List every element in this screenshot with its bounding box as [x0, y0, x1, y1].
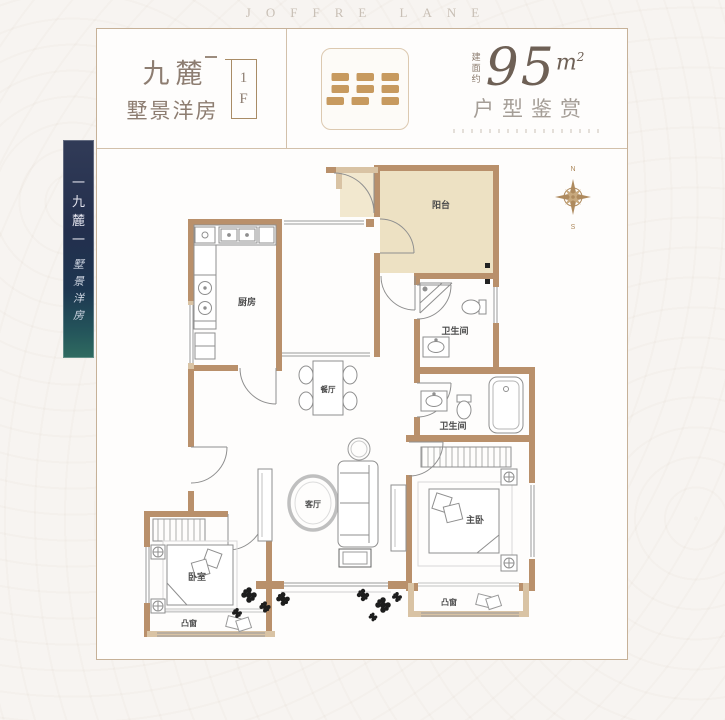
- floorplan: N S 阳台 厨房 卫生间 卫生间 餐厅: [131, 155, 595, 660]
- floorplan-card: 九麓 墅景洋房 1 F 建面约 95 m2 户: [96, 28, 628, 660]
- floor-letter: F: [239, 91, 247, 108]
- tagline: 户型鉴赏: [465, 93, 589, 123]
- banner-sub-char: 房: [73, 308, 84, 325]
- floor-badge: 1 F: [231, 59, 257, 119]
- bathroom-upper-fixtures: [420, 283, 486, 357]
- brand-wordmark: JOFFRE LANE: [0, 5, 725, 21]
- floor-digit: 1: [240, 70, 248, 87]
- header-right-cell: 建面约 95 m2 户型鉴赏: [287, 29, 627, 148]
- project-name: 九麓: [137, 52, 209, 91]
- label-bay-window-bedroom: 凸窗: [181, 618, 197, 628]
- master-bedroom-furniture: [418, 447, 517, 571]
- label-dining: 餐厅: [320, 384, 336, 394]
- svg-text:S: S: [571, 224, 576, 231]
- floorplan-svg: N S 阳台 厨房 卫生间 卫生间 餐厅: [131, 155, 595, 655]
- side-banner: 一 九 麓 一 墅 景 洋 房: [63, 140, 94, 358]
- kitchen-furniture: [194, 225, 276, 359]
- label-bedroom: 卧室: [188, 571, 206, 582]
- svg-text:N: N: [570, 166, 575, 173]
- page-background: JOFFRE LANE 一 九 麓 一 墅 景 洋 房 九麓 墅景洋房 1 F: [0, 0, 725, 720]
- label-bathroom-lower: 卫生间: [439, 420, 466, 431]
- title-column: 九麓 墅景洋房: [127, 52, 219, 125]
- area-value: 95: [486, 44, 556, 93]
- area-unit: m2: [556, 50, 585, 75]
- micro-caption-decoration: [453, 129, 601, 133]
- area-label: 建面约: [470, 52, 483, 85]
- product-type: 墅景洋房: [127, 95, 219, 125]
- bathroom-lower-fixtures: [421, 377, 523, 433]
- area-block: 建面约 95 m2 户型鉴赏: [453, 44, 601, 133]
- label-balcony: 阳台: [432, 199, 450, 210]
- banner-char: 一: [72, 173, 85, 192]
- label-living: 客厅: [304, 499, 321, 509]
- balcony-floor: [340, 171, 493, 273]
- label-kitchen: 厨房: [238, 296, 256, 307]
- label-bathroom-upper: 卫生间: [441, 325, 468, 336]
- bedroom-furniture: [151, 519, 237, 613]
- banner-char: 一: [72, 230, 85, 249]
- area-top: 建面约 95 m2: [470, 44, 585, 93]
- banner-char: 麓: [72, 211, 85, 230]
- card-header: 九麓 墅景洋房 1 F 建面约 95 m2 户: [97, 29, 627, 149]
- living-furniture: [258, 438, 406, 567]
- label-master-bedroom: 主卧: [466, 514, 484, 525]
- banner-sub-char: 景: [73, 274, 84, 291]
- banner-sub-char: 墅: [73, 257, 84, 274]
- seal-stamp-icon: [321, 48, 409, 130]
- label-bay-window-master: 凸窗: [441, 597, 457, 607]
- banner-sub-char: 洋: [73, 291, 84, 308]
- compass-icon: N S: [555, 166, 591, 231]
- header-left-cell: 九麓 墅景洋房 1 F: [97, 29, 287, 148]
- banner-char: 九: [72, 192, 85, 211]
